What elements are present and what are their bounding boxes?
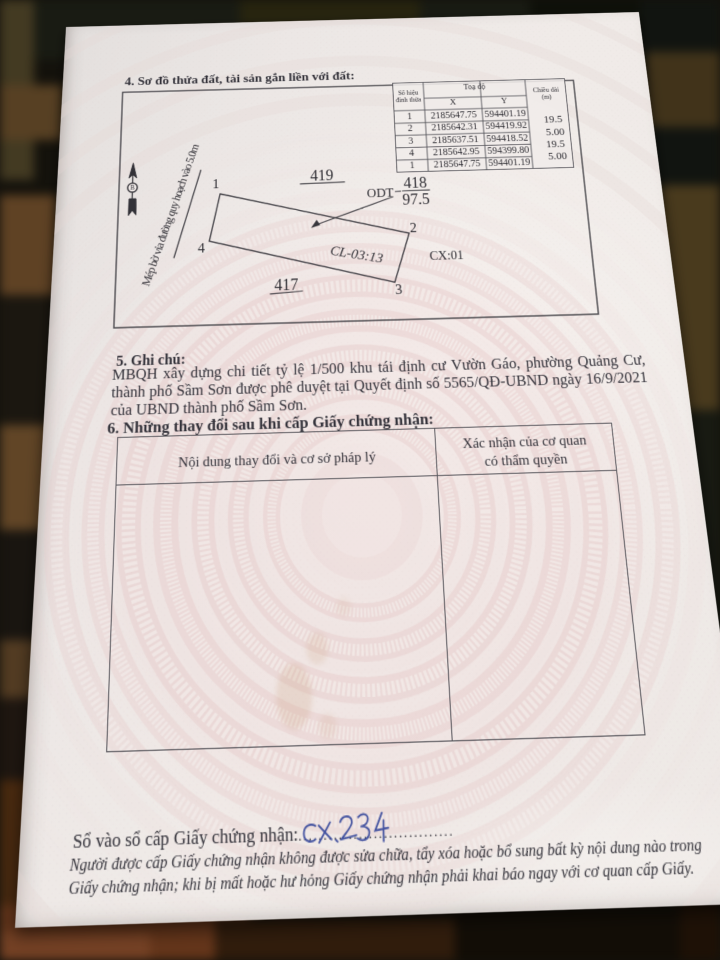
svg-text:B: B [130, 186, 135, 192]
svg-text:1: 1 [212, 177, 219, 192]
svg-text:417: 417 [274, 276, 298, 295]
svg-text:3: 3 [395, 282, 403, 298]
svg-text:2: 2 [409, 220, 417, 235]
svg-text:CX:01: CX:01 [429, 249, 464, 263]
svg-text:CL-03:13: CL-03:13 [329, 242, 384, 266]
svg-text:ODT: ODT [367, 186, 394, 200]
svg-text:419: 419 [310, 168, 334, 185]
svg-text:Mép bờ vỉa đường quy hoạch vào: Mép bờ vỉa đường quy hoạch vào 5.0m [140, 143, 202, 288]
svg-text:4: 4 [198, 240, 206, 256]
svg-text:97.5: 97.5 [402, 191, 430, 209]
svg-text:418: 418 [403, 175, 427, 192]
